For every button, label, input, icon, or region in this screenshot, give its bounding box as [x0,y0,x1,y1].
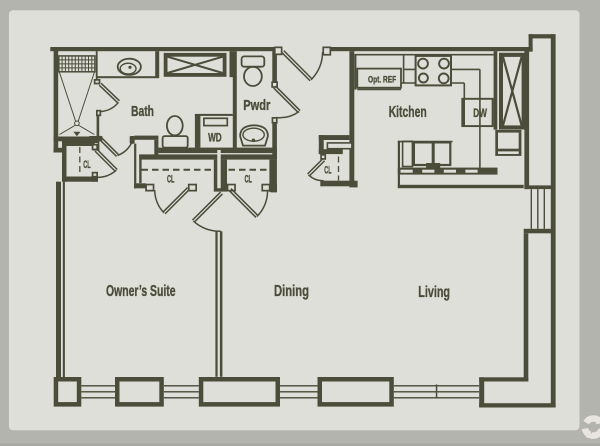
svg-text:WD: WD [208,132,222,145]
svg-text:CL: CL [324,164,331,176]
svg-text:Pwdr: Pwdr [243,98,270,114]
svg-text:Owner’s Suite: Owner’s Suite [106,283,176,300]
svg-text:Dining: Dining [274,283,309,300]
svg-text:Living: Living [418,284,450,301]
svg-text:CL: CL [83,159,91,171]
svg-text:Opt. REF: Opt. REF [368,74,396,85]
svg-text:DW: DW [473,107,487,120]
svg-text:Kitchen: Kitchen [389,104,427,121]
svg-text:CL: CL [245,174,253,186]
svg-text:Bath: Bath [131,103,154,120]
svg-text:CL: CL [167,174,175,186]
